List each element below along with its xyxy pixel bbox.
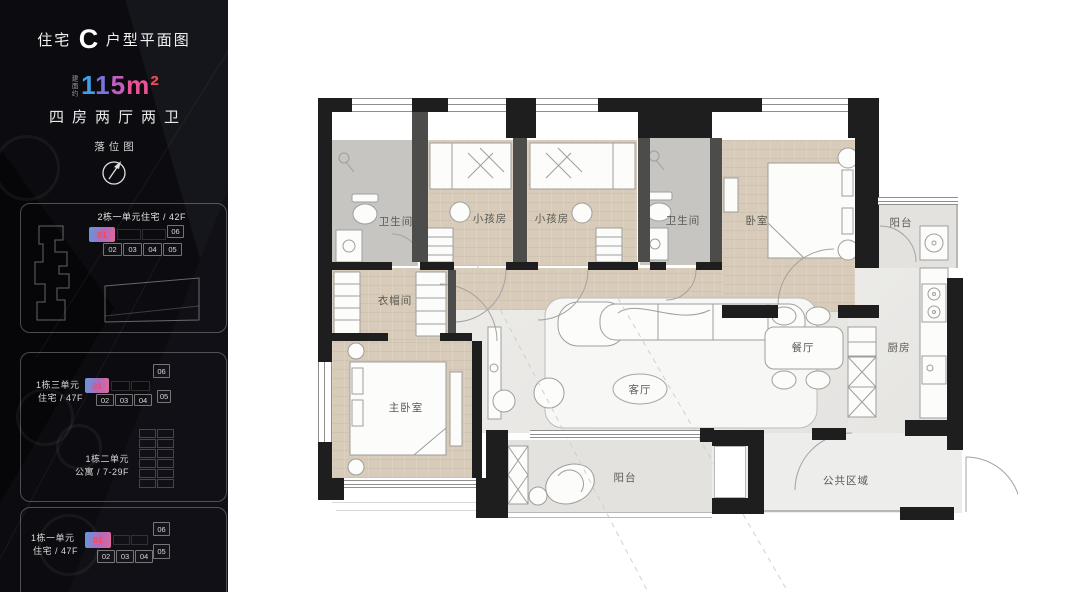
wall [506,262,538,270]
sink-icon [336,230,362,262]
dining-chair [772,371,796,389]
room-label-master: 主卧室 [374,400,438,415]
wall [638,138,650,262]
window [352,98,412,112]
room-label-balcony-bottom: 阳台 [593,470,657,485]
stove-icon [922,284,946,322]
unit-row-faint [117,229,166,240]
room-label-bath2: 卫生间 [651,213,715,228]
card-label: 1栋三单元 [36,378,80,391]
wall [318,262,332,362]
location-card-building1-units[interactable]: 1栋三单元 住宅 / 47F 01 06 05 02 03 04 1栋二单元 公… [20,352,227,502]
sidebar: 住宅 C 户型平面图 建面约 115m² 四房两厅两卫 落位图 2栋一单元住宅 … [0,0,228,592]
room-label-balcony-right: 阳台 [869,215,933,230]
bay-window [344,480,476,488]
card-label: 1栋一单元 [31,531,75,544]
window [448,98,506,112]
wall [855,98,879,268]
wall [472,341,482,478]
wall [318,98,332,262]
wall [712,98,762,112]
wall [318,478,344,500]
card-label: 1栋二单元 [85,452,129,465]
compass-icon [99,156,129,188]
wall [588,262,638,270]
wardrobe [596,228,622,262]
dresser [724,178,738,212]
card-label: 住宅 / 47F [38,391,83,404]
washing-machine-icon [920,226,948,260]
unit-highlighted[interactable]: 01 [85,378,109,393]
location-card-building2[interactable]: 2栋一单元住宅 / 42F 01 06 02 03 04 05 [20,203,227,333]
nightstand [348,459,364,475]
railing-line [502,512,712,513]
room-label-kitchen: 厨房 [867,340,931,355]
wall [332,262,392,270]
wall [513,138,527,262]
room-label-child2: 小孩房 [520,211,584,226]
card-label: 住宅 / 47F [33,544,78,557]
unit-row: 02 03 04 05 [103,243,182,256]
wall [440,333,472,341]
unit-row-faint [111,381,150,391]
wall [448,270,456,336]
sliding-door [530,430,700,438]
unit-highlighted[interactable]: 01 [89,227,115,242]
wall [638,98,712,138]
wall [748,430,764,514]
wall [412,98,448,112]
unit-type-letter: C [79,24,99,54]
unit-row: 02 03 04 [97,550,153,563]
wall [947,278,963,450]
apartment-stack-diagram[interactable] [139,429,174,488]
wall [838,305,879,318]
unit-row-faint [113,535,148,545]
shower-icon [649,151,664,170]
unit-box[interactable]: 04 [134,394,152,406]
window [536,98,598,112]
unit-box[interactable]: 03 [115,394,133,406]
plant-niche [714,446,746,498]
unit-box[interactable]: 04 [143,243,162,256]
area-value: 建面约 115m² [0,70,228,100]
page-title: 住宅 C 户型平面图 [0,24,228,55]
tower-outline [101,276,203,328]
railing-line [502,517,712,518]
wall [420,262,454,270]
unit-box[interactable]: 05 [153,544,170,559]
room-label-bedroom: 卧室 [725,213,789,228]
wall [905,420,947,436]
bay-line [332,502,478,503]
unit-box[interactable]: 06 [153,522,170,536]
nightstand [348,343,364,359]
dining-chair [806,371,830,389]
wardrobe [427,228,453,262]
wardrobe [334,272,360,334]
room-label-dining: 餐厅 [771,340,835,355]
title-suffix: 户型平面图 [106,32,191,49]
layout-spec: 四房两厅两卫 [0,106,228,127]
kitchen-sink-icon [922,356,946,384]
wall [506,98,536,138]
balcony-cabinet [508,446,528,504]
wall [710,138,722,262]
area-number: 115m² [81,70,160,100]
unit-highlighted[interactable]: 01 [85,532,111,548]
wall [722,305,778,318]
page: 住宅 C 户型平面图 建面约 115m² 四房两厅两卫 落位图 2栋一单元住宅 … [0,0,1080,592]
unit-box[interactable]: 03 [116,550,134,563]
balcony-edge [956,200,958,268]
shower-icon [339,153,354,172]
unit-box[interactable]: 04 [135,550,153,563]
side-table [529,487,547,505]
unit-box[interactable]: 02 [97,550,115,563]
wall [598,98,638,112]
room-label-child1: 小孩房 [458,211,522,226]
room-label-bath1: 卫生间 [364,214,428,229]
room-label-public: 公共区域 [814,473,878,488]
window [318,362,332,442]
unit-box[interactable]: 02 [103,243,122,256]
window [762,98,848,112]
single-bed [430,143,511,189]
wall [332,333,388,341]
unit-box[interactable]: 03 [123,243,142,256]
wall [650,262,666,270]
bay-line [336,510,476,511]
balcony-window [878,197,958,205]
wall [486,430,508,518]
room-label-living: 客厅 [608,382,672,397]
single-bed [530,143,635,189]
wall [696,262,722,270]
wall [900,507,954,520]
unit-row: 02 03 04 [96,394,152,406]
lounge-chair [540,457,601,511]
unit-box[interactable]: 06 [167,225,184,238]
side-table [493,390,515,412]
floor-plan: 卫生间 小孩房 小孩房 卫生间 卧室 阳台 衣帽间 主卧室 客厅 餐厅 厨房 阳… [318,98,1018,592]
wall [812,428,846,440]
unit-box[interactable]: 05 [163,243,182,256]
unit-box[interactable]: 02 [96,394,114,406]
card-title: 2栋一单元住宅 / 42F [97,210,186,223]
dining-chair [806,307,830,325]
unit-box[interactable]: 05 [157,390,171,403]
location-map-label: 落位图 [0,139,228,154]
wall [412,112,428,262]
card-label: 公寓 / 7-29F [75,465,129,478]
room-label-closet: 衣帽间 [363,293,427,308]
area-prefix: 建面约 [68,75,78,98]
title-prefix: 住宅 [37,32,71,49]
unit-box[interactable]: 06 [153,364,170,378]
location-card-building1[interactable]: 1栋一单元 住宅 / 47F 01 06 05 02 03 04 [20,507,227,592]
site-outline [29,222,75,324]
